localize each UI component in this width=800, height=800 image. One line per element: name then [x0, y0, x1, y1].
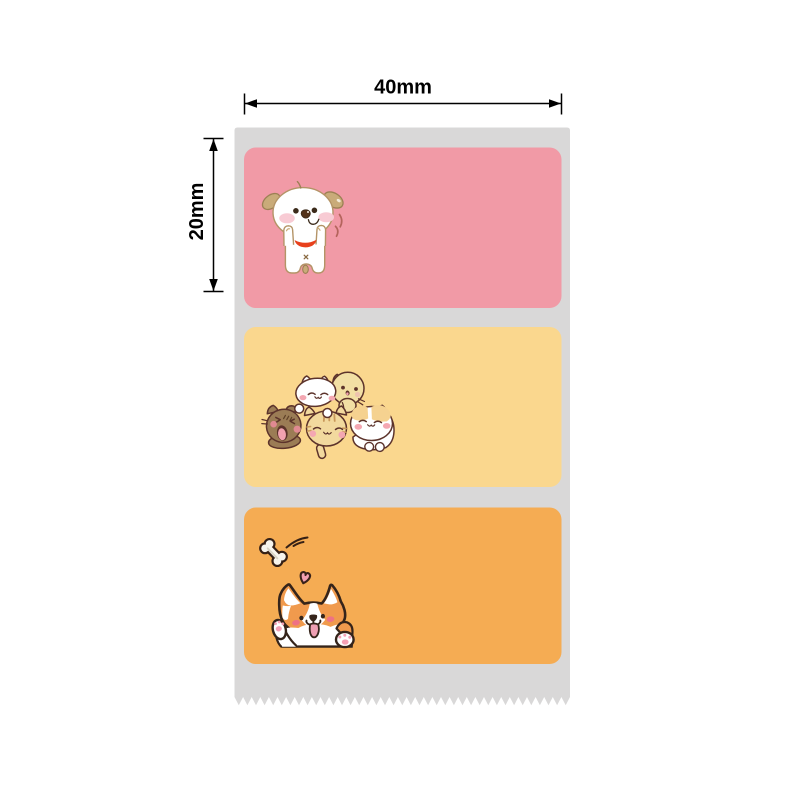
svg-text:40mm: 40mm — [374, 77, 432, 99]
svg-text:20mm: 20mm — [186, 183, 208, 241]
